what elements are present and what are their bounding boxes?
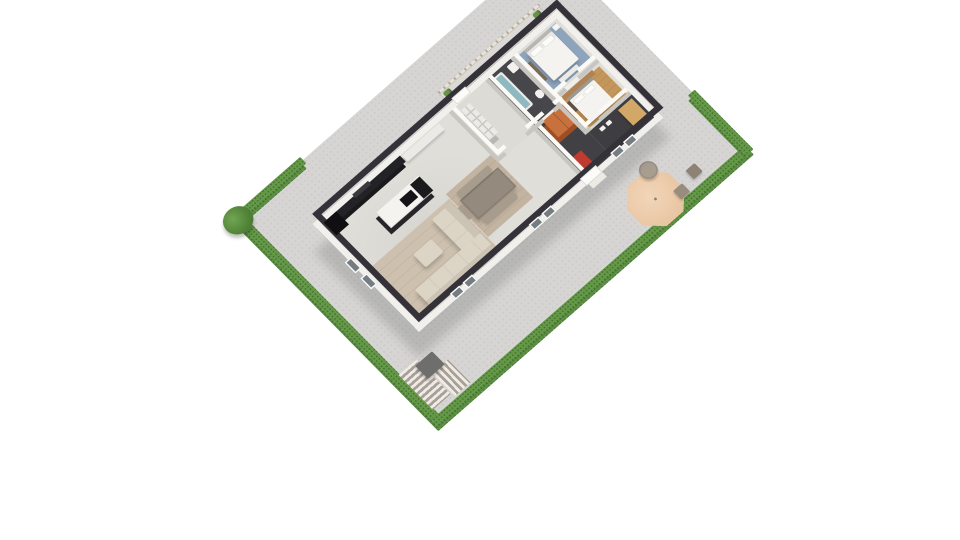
isometric-plan-plane [232, 0, 754, 431]
island-sink [399, 190, 418, 208]
floor-plan-scene [0, 0, 960, 540]
